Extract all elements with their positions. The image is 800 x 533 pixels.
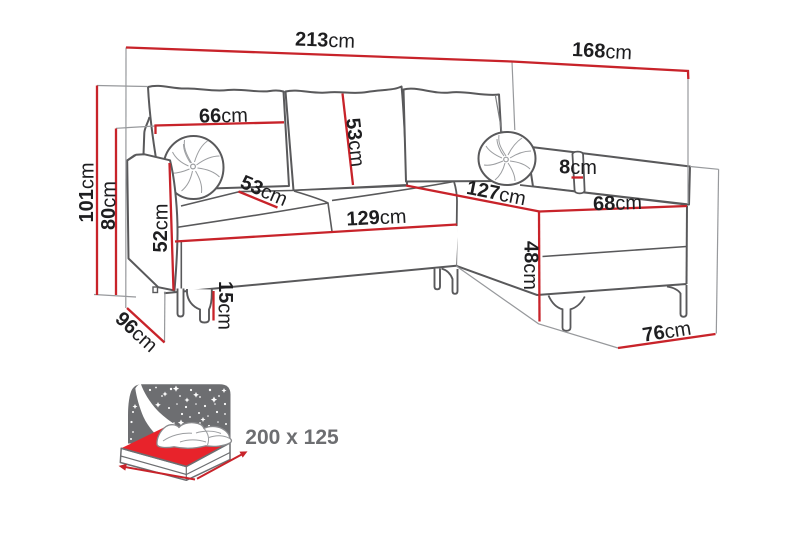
svg-text:129cm: 129cm: [346, 206, 407, 231]
svg-text:48cm: 48cm: [519, 241, 541, 290]
svg-text:66cm: 66cm: [199, 105, 248, 128]
svg-text:8cm: 8cm: [559, 157, 597, 179]
svg-text:52cm: 52cm: [150, 204, 172, 253]
svg-text:68cm: 68cm: [593, 192, 643, 216]
svg-text:213cm: 213cm: [295, 29, 356, 53]
svg-text:168cm: 168cm: [571, 39, 632, 64]
svg-text:101cm: 101cm: [76, 162, 98, 222]
svg-text:15cm: 15cm: [214, 281, 236, 330]
svg-text:80cm: 80cm: [98, 181, 120, 230]
svg-text:200 x 125: 200 x 125: [245, 426, 339, 449]
